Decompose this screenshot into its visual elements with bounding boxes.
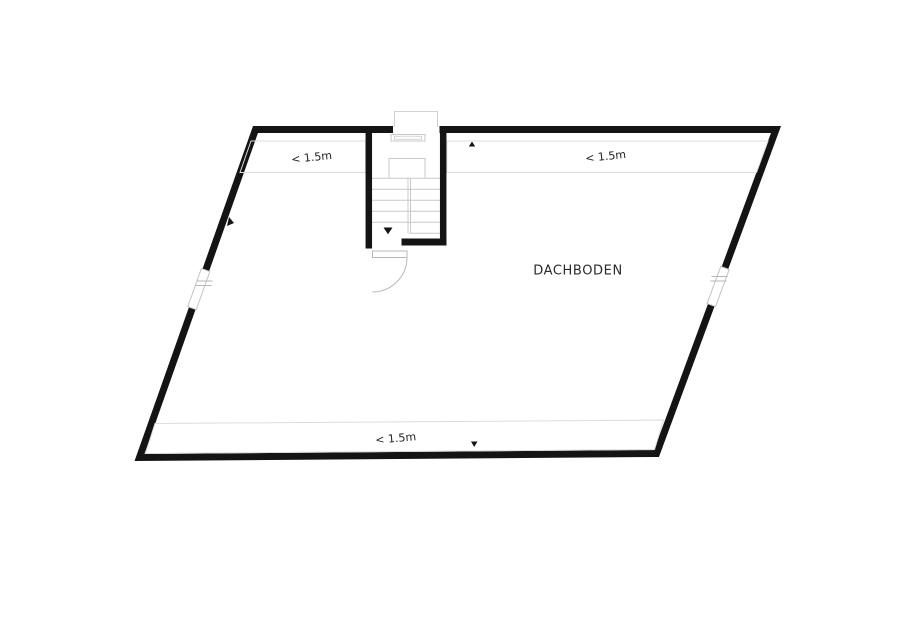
stair-top-step-outer [391,135,425,142]
door-leaf [373,251,408,258]
room-name-label: DACHBODEN [533,264,623,279]
floorplan-page: < 1.5m < 1.5m < 1.5m DACHBODEN [0,0,900,636]
exterior-wall-outline [140,130,777,458]
attic-floorplan: < 1.5m < 1.5m < 1.5m DACHBODEN [0,0,900,636]
exterior-walls [140,130,777,458]
stair-wall-opening [393,124,440,135]
